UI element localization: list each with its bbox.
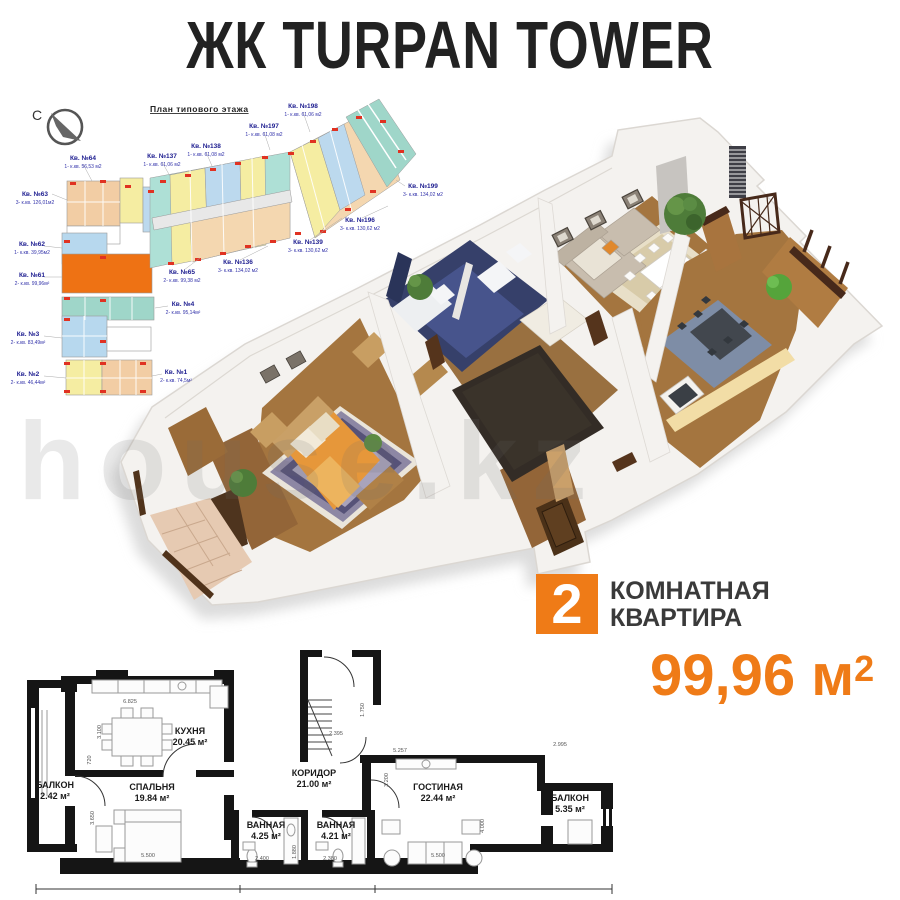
svg-text:3- к.кв. 134,02 м2: 3- к.кв. 134,02 м2 bbox=[403, 192, 443, 198]
svg-text:2- к.кв. 99,96м²: 2- к.кв. 99,96м² bbox=[15, 281, 50, 287]
svg-text:1- к.кв. 39,95м2: 1- к.кв. 39,95м2 bbox=[14, 250, 50, 256]
svg-text:720: 720 bbox=[87, 755, 93, 764]
svg-text:4.25 м²: 4.25 м² bbox=[251, 831, 281, 841]
svg-text:Кв. №139: Кв. №139 bbox=[293, 239, 323, 246]
svg-text:21.00 м²: 21.00 м² bbox=[297, 779, 332, 789]
svg-text:2.400: 2.400 bbox=[255, 856, 269, 862]
svg-text:План типового этажа: План типового этажа bbox=[150, 104, 249, 114]
svg-text:20.45 м²: 20.45 м² bbox=[173, 737, 208, 747]
svg-text:1.880: 1.880 bbox=[292, 845, 298, 859]
svg-text:КУХНЯ: КУХНЯ bbox=[175, 726, 205, 736]
svg-text:1- к.кв. 61,08 м2: 1- к.кв. 61,08 м2 bbox=[187, 152, 224, 158]
svg-text:Кв. №2: Кв. №2 bbox=[17, 371, 40, 378]
svg-text:ВАННАЯ: ВАННАЯ bbox=[317, 820, 356, 830]
svg-text:Кв. №65: Кв. №65 bbox=[169, 269, 195, 276]
svg-text:Кв. №196: Кв. №196 bbox=[345, 217, 375, 224]
svg-text:3.650: 3.650 bbox=[90, 811, 96, 825]
svg-text:1- к.кв. 61,06 м2: 1- к.кв. 61,06 м2 bbox=[143, 162, 180, 168]
svg-text:19.84 м²: 19.84 м² bbox=[135, 793, 170, 803]
svg-text:5.500: 5.500 bbox=[431, 853, 445, 859]
svg-text:СПАЛЬНЯ: СПАЛЬНЯ bbox=[129, 782, 174, 792]
svg-text:2- к.кв. 46,44м²: 2- к.кв. 46,44м² bbox=[11, 380, 46, 386]
svg-text:Кв. №62: Кв. №62 bbox=[19, 241, 45, 248]
svg-text:Кв. №136: Кв. №136 bbox=[223, 259, 253, 266]
svg-text:Кв. №137: Кв. №137 bbox=[147, 153, 177, 160]
svg-text:Кв. №138: Кв. №138 bbox=[191, 143, 221, 150]
svg-text:Кв. №64: Кв. №64 bbox=[70, 155, 96, 162]
svg-text:КОРИДОР: КОРИДОР bbox=[292, 768, 336, 778]
svg-text:БАЛКОН: БАЛКОН bbox=[551, 793, 589, 803]
svg-text:2.395: 2.395 bbox=[329, 731, 343, 737]
svg-text:2.380: 2.380 bbox=[323, 856, 337, 862]
svg-text:2.995: 2.995 bbox=[553, 742, 567, 748]
svg-text:2- к.кв. 95,14м²: 2- к.кв. 95,14м² bbox=[166, 310, 201, 316]
svg-text:3.200: 3.200 bbox=[384, 773, 390, 787]
svg-text:1- к.кв. 61,08 м2: 1- к.кв. 61,08 м2 bbox=[245, 132, 282, 138]
svg-text:Кв. №63: Кв. №63 bbox=[22, 191, 48, 198]
svg-text:1- к.кв. 56,53 м2: 1- к.кв. 56,53 м2 bbox=[64, 164, 101, 170]
svg-text:2- к.кв. 74,5м²: 2- к.кв. 74,5м² bbox=[160, 378, 192, 384]
svg-text:1.750: 1.750 bbox=[360, 703, 366, 717]
svg-text:3- к.кв. 130,62 м2: 3- к.кв. 130,62 м2 bbox=[288, 248, 328, 254]
svg-text:6.825: 6.825 bbox=[123, 699, 137, 705]
svg-text:2- к.кв. 83,49м²: 2- к.кв. 83,49м² bbox=[11, 340, 46, 346]
svg-text:3.100: 3.100 bbox=[97, 725, 103, 739]
svg-text:3- к.кв. 134,02 м2: 3- к.кв. 134,02 м2 bbox=[218, 268, 258, 274]
svg-text:3- к.кв. 126,01м2: 3- к.кв. 126,01м2 bbox=[16, 200, 55, 206]
svg-text:Кв. №61: Кв. №61 bbox=[19, 272, 45, 279]
svg-text:1- к.кв. 61,06 м2: 1- к.кв. 61,06 м2 bbox=[284, 112, 321, 118]
svg-text:Кв. №4: Кв. №4 bbox=[172, 301, 195, 308]
svg-text:Кв. №1: Кв. №1 bbox=[165, 369, 188, 376]
svg-text:C: C bbox=[32, 107, 42, 123]
svg-text:5.500: 5.500 bbox=[141, 853, 155, 859]
svg-text:Кв. №3: Кв. №3 bbox=[17, 331, 40, 338]
svg-text:Кв. №199: Кв. №199 bbox=[408, 183, 438, 190]
svg-text:22.44 м²: 22.44 м² bbox=[421, 793, 456, 803]
svg-text:2.42 м²: 2.42 м² bbox=[40, 791, 70, 801]
svg-text:4.21 м²: 4.21 м² bbox=[321, 831, 351, 841]
svg-text:2- к.кв. 99,38 м2: 2- к.кв. 99,38 м2 bbox=[163, 278, 200, 284]
svg-text:5.35 м²: 5.35 м² bbox=[555, 804, 585, 814]
svg-text:4.000: 4.000 bbox=[480, 819, 486, 833]
svg-text:Кв. №198: Кв. №198 bbox=[288, 103, 318, 110]
svg-text:ГОСТИНАЯ: ГОСТИНАЯ bbox=[413, 782, 463, 792]
svg-text:БАЛКОН: БАЛКОН bbox=[36, 780, 74, 790]
svg-text:5.257: 5.257 bbox=[393, 748, 407, 754]
svg-text:Кв. №197: Кв. №197 bbox=[249, 123, 279, 130]
svg-text:3- к.кв. 130,62 м2: 3- к.кв. 130,62 м2 bbox=[340, 226, 380, 232]
svg-text:ВАННАЯ: ВАННАЯ bbox=[247, 820, 286, 830]
